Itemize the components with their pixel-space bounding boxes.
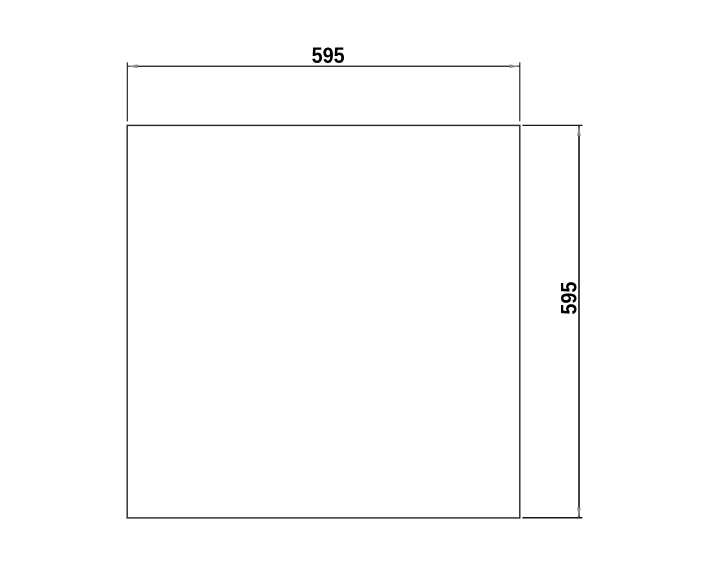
svg-text:595: 595 bbox=[312, 43, 345, 68]
svg-text:595: 595 bbox=[557, 282, 582, 315]
